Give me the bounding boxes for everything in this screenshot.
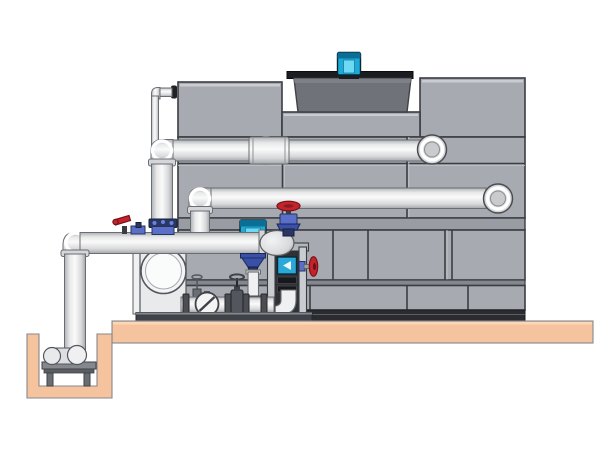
tower-top-left-panel <box>178 82 282 137</box>
gate-valve-body <box>231 290 243 313</box>
fan-motor-face <box>344 60 355 73</box>
tower-top-right-panel <box>420 78 525 137</box>
fan-motor-cap <box>338 53 361 59</box>
header-drop-pipe <box>65 254 86 352</box>
pipe2-run <box>198 188 486 209</box>
fan-motor <box>338 53 361 80</box>
cooling-tower-diagram: Closed-circuit cooling tower installatio… <box>0 0 600 450</box>
pump-stand-shelf <box>44 369 94 373</box>
globe-valve-bonnet <box>280 214 297 224</box>
pump-inlet-bore <box>146 253 182 289</box>
riser-flange-lower <box>152 227 174 235</box>
panel-highlight <box>284 114 418 116</box>
manifold-flange <box>183 294 189 315</box>
header-run <box>80 233 263 254</box>
panel-highlight <box>180 84 280 87</box>
manifold-flange <box>261 294 267 315</box>
concrete-pad <box>112 321 593 343</box>
lever-valve-knob <box>113 219 118 224</box>
check-valve <box>196 291 219 316</box>
tower-rail-band <box>178 218 525 230</box>
tower-post-right <box>299 247 307 321</box>
tower-slot <box>278 277 297 284</box>
pump-column <box>248 272 259 298</box>
side-valve-hub <box>313 263 316 270</box>
fan-shroud-highlight <box>294 79 411 84</box>
manifold-flange <box>243 294 249 315</box>
fan-shroud <box>294 79 411 113</box>
panel-highlight <box>422 80 523 83</box>
pad-top-highlight <box>113 322 592 325</box>
pump-stand-leg <box>47 373 53 386</box>
flange-bolt <box>153 221 157 225</box>
pipe2-right-elbow <box>484 184 513 213</box>
flange-bolt <box>161 220 165 224</box>
makeup-fitting-cap <box>136 223 141 228</box>
tower-row-separator <box>178 280 525 286</box>
skid-rail-highlight <box>136 313 312 315</box>
pipe1-right-elbow <box>418 135 447 164</box>
volute-flange <box>241 254 266 259</box>
lever-valve-stem <box>122 226 127 234</box>
pipe1-coupling <box>249 137 289 164</box>
inline-motor-cap <box>240 220 266 227</box>
pump-stand-leg <box>84 373 90 386</box>
end-suction-pump <box>133 246 186 314</box>
pump-motor-end <box>44 348 61 365</box>
handwheel-hub <box>284 204 294 208</box>
pipe1-run <box>160 140 428 161</box>
pump-casing-end <box>68 346 87 365</box>
diagram-canvas: Closed-circuit cooling tower installatio… <box>0 0 600 450</box>
flange-bolt <box>170 221 174 225</box>
manifold-flange <box>225 294 231 315</box>
pipe1-drop <box>152 164 173 221</box>
globe-valve-base <box>283 229 294 236</box>
